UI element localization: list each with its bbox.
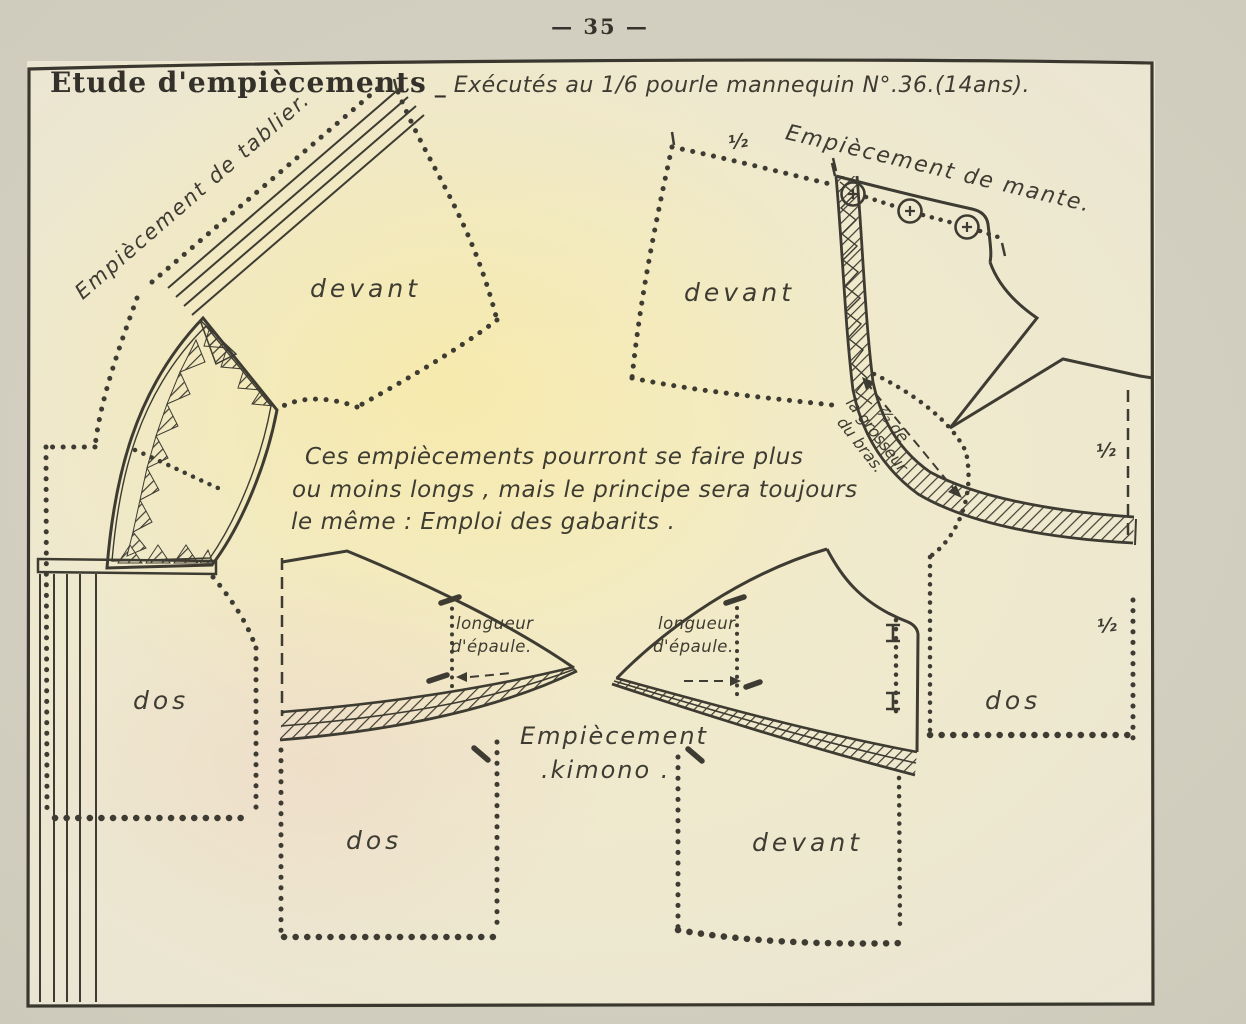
title-separator: _	[435, 72, 446, 98]
label-dos-mante: dos	[985, 686, 1041, 715]
label-dos-tablier: dos	[133, 686, 189, 715]
title-subtitle: Exécutés au 1/6 pourle mannequin N°.36.(…	[454, 69, 1030, 98]
scanned-book-page: { "page": { "number": "— 35 —" }, "heade…	[0, 0, 1246, 1024]
label-shoulder-right-line1: longueur	[658, 614, 735, 633]
label-shoulder-right-line2: d'épaule.	[653, 637, 734, 656]
page-number: — 35 —	[0, 14, 1200, 39]
note-line-1: Ces empiècements pourront se faire plus	[305, 444, 803, 470]
label-half-mante-top: ½	[726, 129, 749, 154]
note-line-2: ou moins longs , mais le principe sera t…	[292, 477, 858, 503]
label-shoulder-left-line2: d'épaule.	[451, 637, 532, 656]
label-devant-mante: devant	[684, 278, 795, 307]
page-title: Etude d'empiècements _ Exécutés au 1/6 p…	[50, 66, 1030, 99]
label-devant-kimono: devant	[752, 828, 863, 857]
label-kimono-line1: Empiècement	[520, 722, 708, 750]
label-shoulder-left-line1: longueur	[456, 614, 533, 633]
note-line-3: le même : Emploi des gabarits .	[291, 509, 676, 535]
label-devant-tablier: devant	[310, 274, 421, 303]
label-half-dos-right: ½	[1096, 614, 1119, 639]
label-kimono-line2: .kimono .	[541, 756, 670, 784]
label-dos-kimono: dos	[346, 826, 402, 855]
label-half-mante-right: ½	[1095, 439, 1118, 464]
title-main: Etude d'empiècements	[50, 66, 427, 99]
